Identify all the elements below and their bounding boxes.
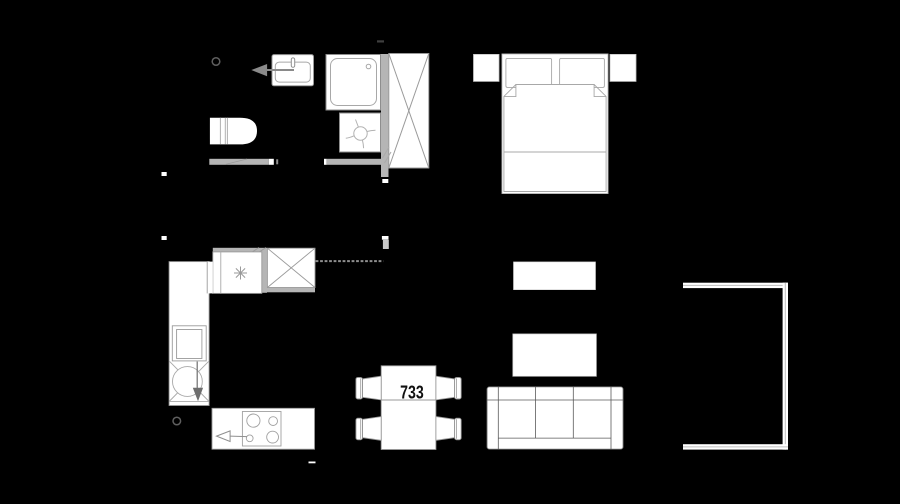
svg-text:733: 733 xyxy=(400,381,424,402)
